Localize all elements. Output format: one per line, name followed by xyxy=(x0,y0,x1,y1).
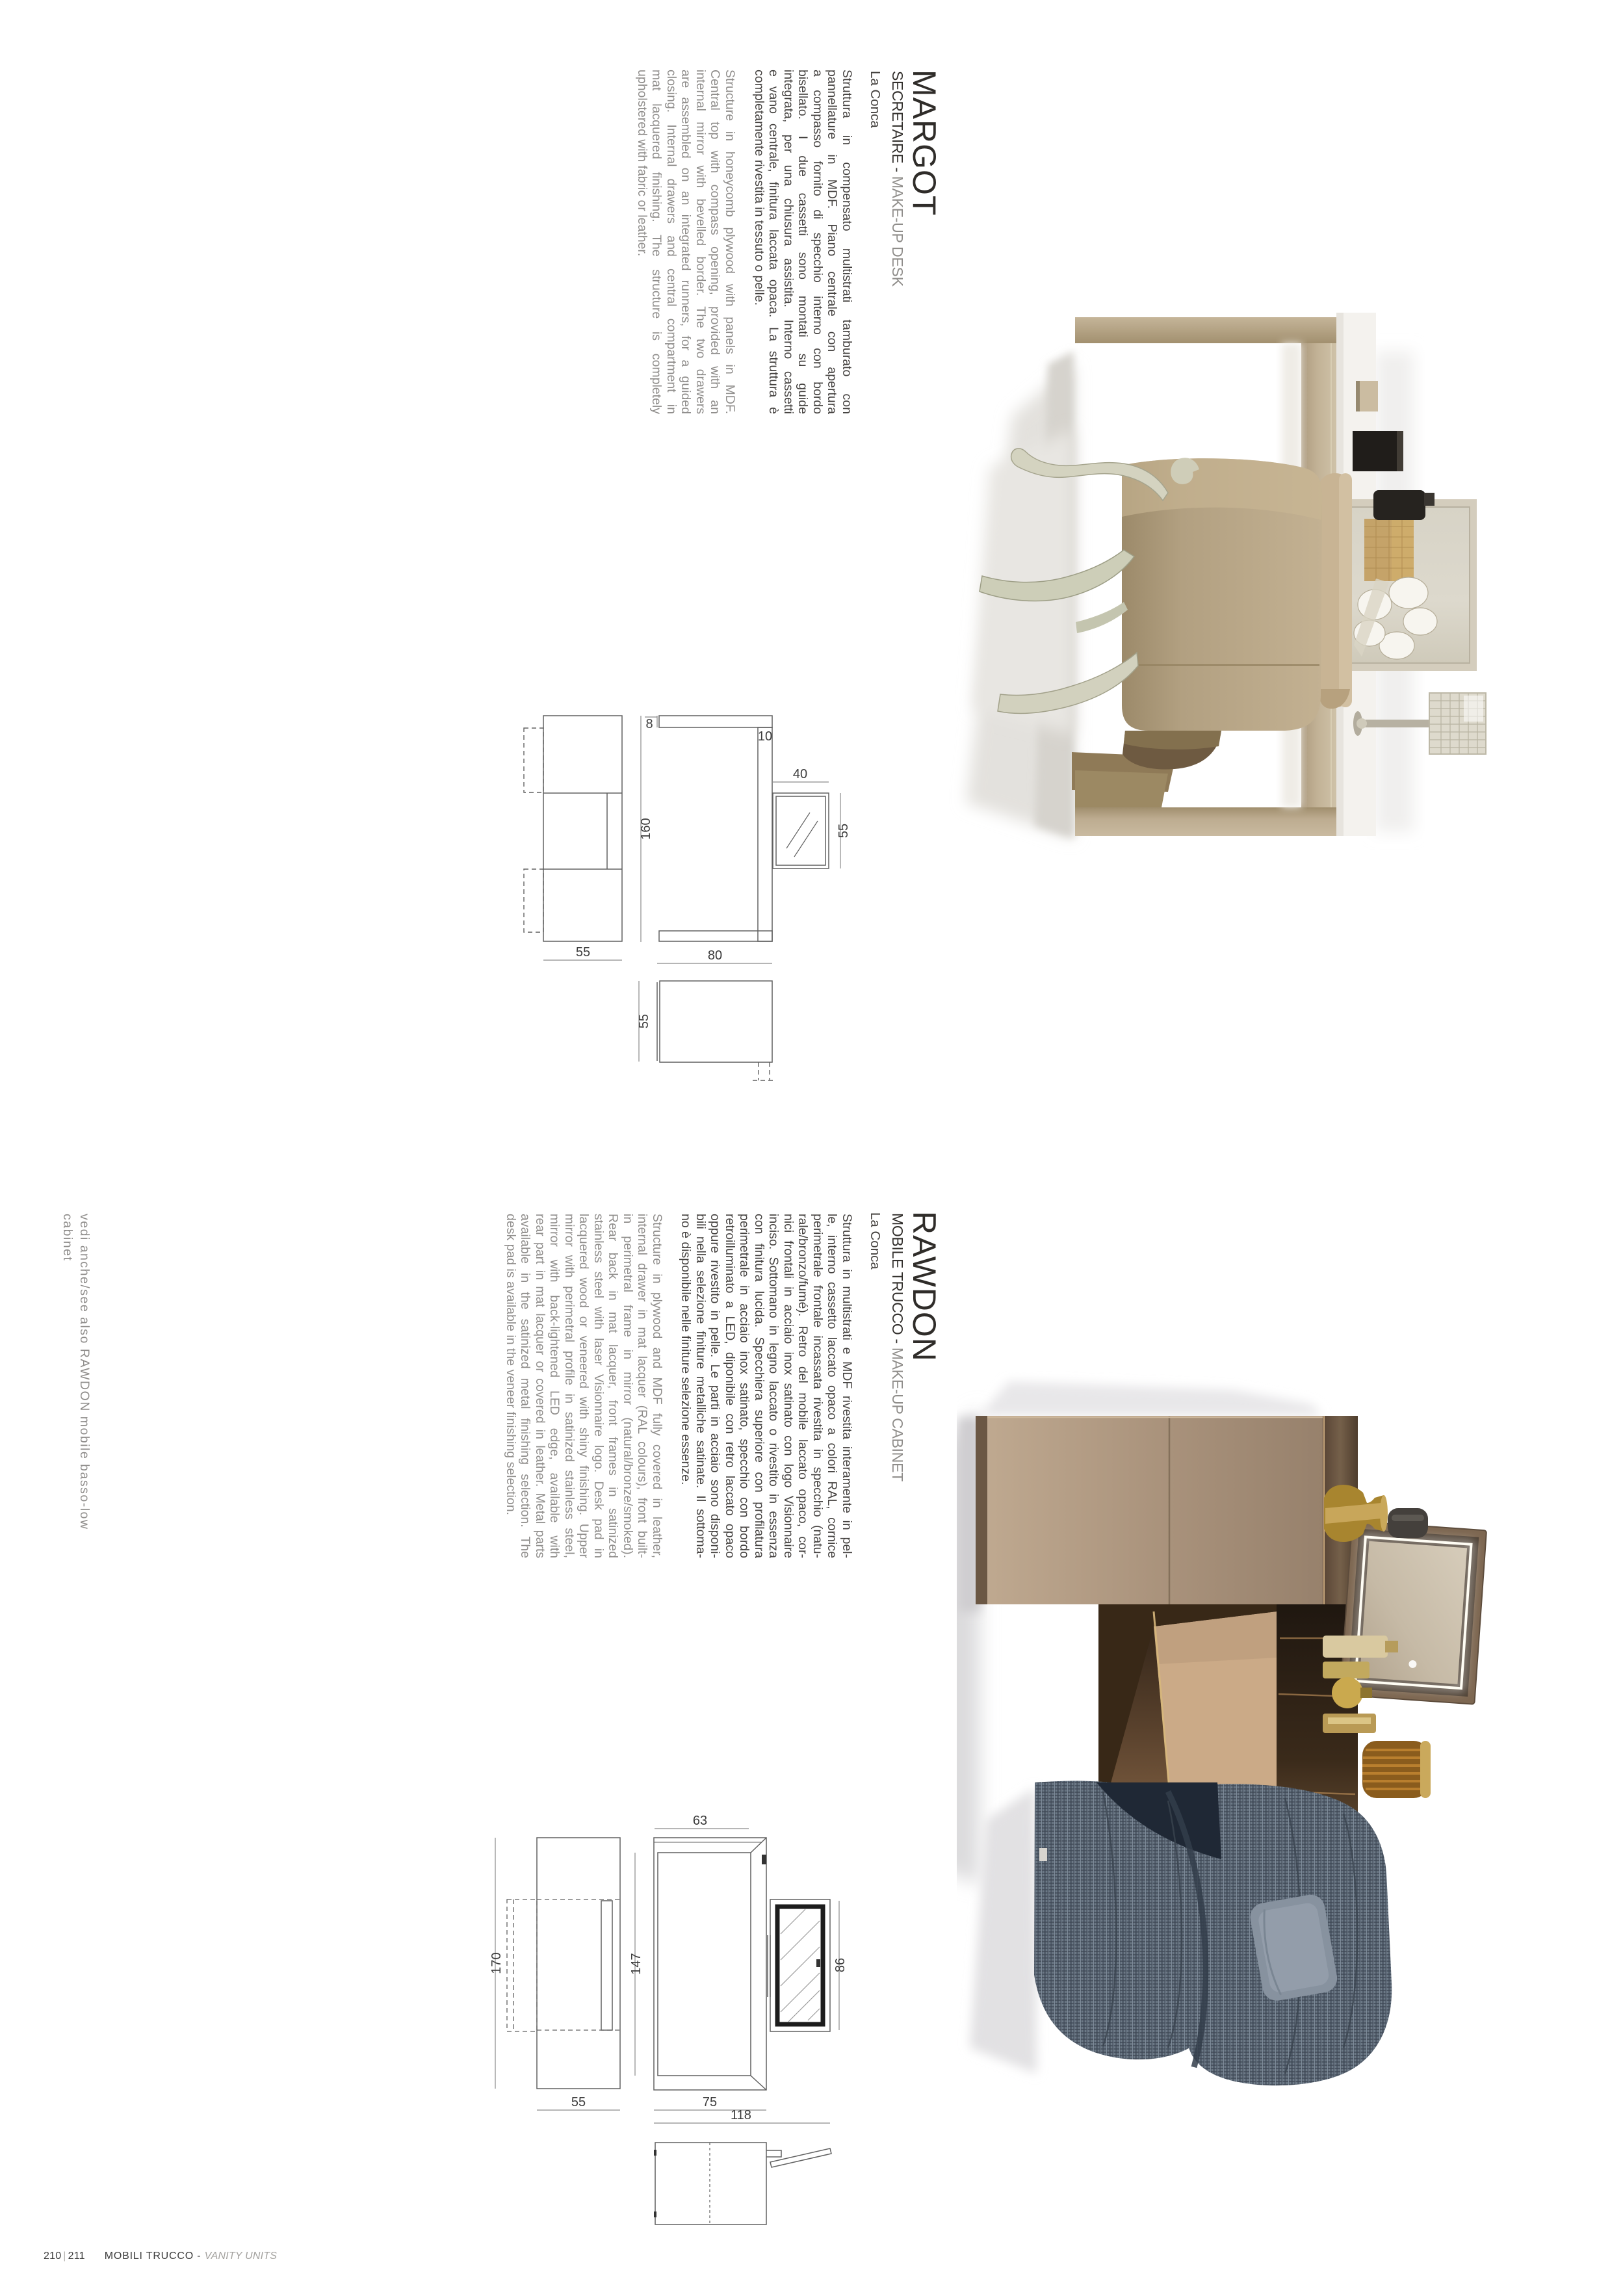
svg-text:55: 55 xyxy=(576,945,590,959)
svg-text:118: 118 xyxy=(731,2108,751,2122)
svg-text:147: 147 xyxy=(629,1953,643,1974)
svg-text:170: 170 xyxy=(489,1952,504,1974)
svg-text:80: 80 xyxy=(708,948,722,963)
svg-text:10: 10 xyxy=(758,729,772,744)
svg-text:55: 55 xyxy=(637,1014,651,1028)
svg-text:86: 86 xyxy=(833,1958,848,1972)
svg-text:75: 75 xyxy=(703,2095,717,2109)
svg-text:160: 160 xyxy=(639,818,653,839)
svg-text:55: 55 xyxy=(837,824,851,838)
svg-text:63: 63 xyxy=(693,1814,707,1828)
svg-text:40: 40 xyxy=(793,767,807,781)
svg-text:8: 8 xyxy=(645,717,653,731)
svg-text:55: 55 xyxy=(571,2095,586,2109)
